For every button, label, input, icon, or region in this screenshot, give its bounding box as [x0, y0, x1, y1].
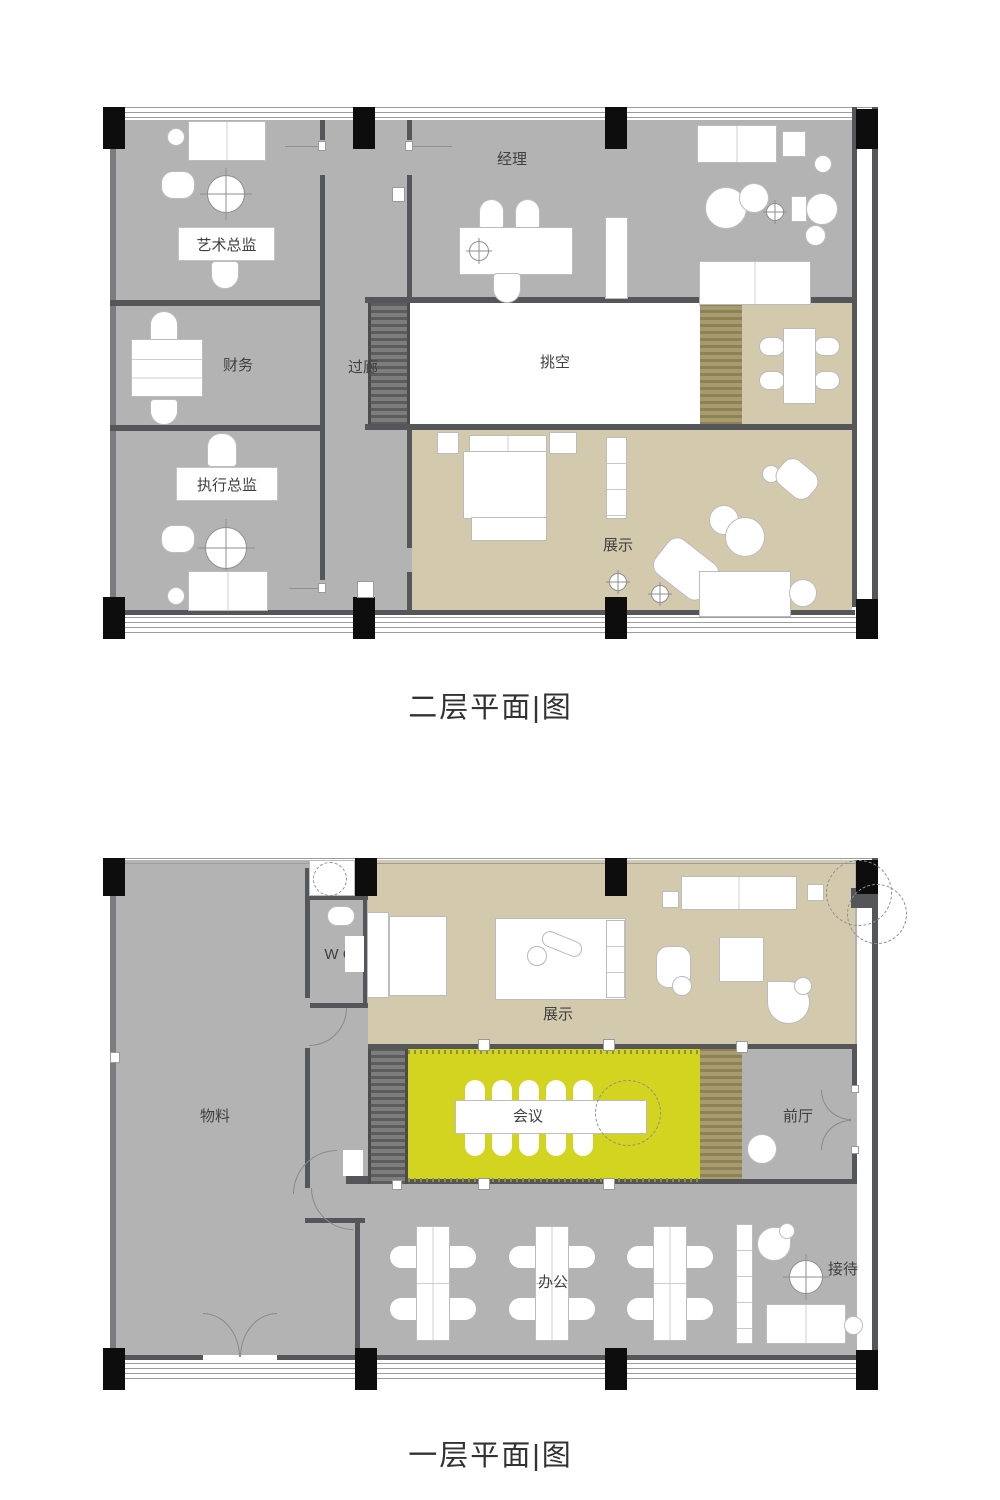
wall-niche: [478, 1039, 490, 1051]
armchair-icon: [161, 525, 195, 553]
door-handle: [405, 141, 413, 151]
glass-hatch: [408, 1178, 700, 1182]
pillow-icon: [367, 912, 389, 998]
stool-icon: [794, 977, 812, 995]
door-handle: [851, 1146, 859, 1154]
desk-icon: [131, 339, 203, 397]
chair-icon: [759, 337, 785, 356]
wall: [783, 1179, 853, 1184]
wall: [365, 424, 855, 430]
room-label-front-hall: 前厅: [766, 1108, 830, 1126]
column: [355, 1348, 377, 1390]
column: [355, 858, 377, 896]
wood-stairs-icon: [700, 1048, 742, 1184]
column: [353, 107, 375, 149]
wall: [110, 300, 320, 306]
room-label-void: 挑空: [410, 354, 700, 372]
stairs-icon: [368, 1048, 408, 1184]
wall: [320, 175, 325, 580]
door-handle: [318, 141, 326, 151]
room-label-meeting: 会议: [498, 1108, 558, 1126]
column: [605, 858, 627, 896]
column: [605, 597, 627, 639]
table-icon: [783, 328, 816, 404]
stool-icon: [672, 976, 692, 996]
pouf-icon: [725, 517, 765, 557]
stool-icon: [844, 1316, 863, 1335]
bed-icon: [389, 916, 447, 996]
column: [103, 858, 125, 896]
ottoman-icon: [791, 196, 807, 222]
column: [856, 109, 878, 149]
desk-icon: [653, 1226, 687, 1341]
sofa-icon: [697, 125, 777, 163]
desk-cluster: [643, 1226, 697, 1341]
floor-plan-sheet: 艺术总监 财务 过廊 执行总监 经理: [0, 0, 1000, 1500]
column: [103, 107, 125, 149]
wall-niche: [478, 1178, 490, 1190]
shelf-icon: [606, 920, 625, 998]
sofa-icon: [188, 571, 268, 611]
chair-icon: [814, 337, 840, 356]
window-band-top: [103, 107, 878, 120]
wall-niche: [603, 1039, 615, 1051]
bed-bench-icon: [471, 517, 547, 541]
wall: [110, 425, 320, 431]
stool-icon: [805, 225, 826, 246]
room-label-manager: 经理: [477, 151, 547, 169]
wall-niche: [343, 1150, 363, 1176]
balcony-strip: [857, 143, 872, 605]
wall: [407, 175, 412, 303]
chair-icon: [207, 433, 237, 467]
wall-niche: [357, 581, 374, 598]
room-label-display-2f: 展示: [583, 537, 653, 555]
table-icon: [719, 937, 764, 982]
side-table-icon: [662, 891, 679, 908]
chair-icon: [211, 261, 239, 289]
floor-plan-first: W C 物料 展示: [103, 858, 878, 1403]
pouf-icon: [739, 183, 769, 213]
sofa-icon: [681, 876, 797, 910]
cabinet-icon: [605, 217, 628, 299]
desk-icon: [416, 1226, 450, 1341]
wall-niche: [736, 1041, 748, 1053]
desk-cluster: [406, 1226, 460, 1341]
glass-hatch: [408, 1050, 700, 1054]
stool-icon: [789, 579, 817, 607]
wall: [355, 1223, 360, 1357]
chair-icon: [515, 199, 540, 229]
sofa-icon: [699, 261, 811, 305]
column: [103, 597, 125, 639]
window-band-top: [103, 858, 878, 868]
chair-icon: [493, 273, 521, 303]
side-table-icon: [766, 203, 784, 221]
window-band-bottom: [103, 617, 878, 633]
wall: [407, 572, 412, 610]
side-table-icon: [807, 884, 824, 901]
room-label-reception: 接待: [811, 1261, 875, 1279]
wall: [310, 896, 368, 900]
room-label-display-1f: 展示: [523, 1006, 593, 1024]
compass-icon: [469, 241, 489, 261]
stool-icon: [167, 128, 185, 146]
wall: [407, 430, 412, 548]
side-table-icon: [782, 131, 806, 157]
stool-icon: [747, 1134, 777, 1164]
figure-sketch-icon: [527, 946, 547, 966]
wall: [346, 1176, 368, 1184]
round-table-icon: [205, 527, 247, 569]
compass-icon: [609, 573, 627, 591]
room-label-art-director: 艺术总监: [196, 234, 256, 255]
desk-exec-director: 执行总监: [176, 467, 278, 501]
armchair-icon: [161, 171, 195, 199]
room-label-materials: 物料: [183, 1108, 247, 1126]
room-label-office: 办公: [521, 1274, 585, 1292]
side-table-icon: [437, 432, 459, 454]
door-tick: [412, 146, 452, 147]
wall: [110, 120, 116, 612]
column: [856, 599, 878, 639]
round-table-icon: [207, 175, 245, 213]
room-label-corridor: 过廊: [331, 359, 395, 377]
desk-art-director: 艺术总监: [178, 227, 275, 261]
wall: [407, 120, 412, 140]
wall: [320, 120, 325, 140]
column: [856, 1350, 878, 1390]
chaise-icon: [699, 571, 791, 617]
wall-niche: [392, 1180, 402, 1190]
column: [103, 1348, 125, 1390]
wc-niche: [345, 936, 364, 972]
sofa-icon: [188, 121, 266, 161]
chair-icon: [814, 371, 840, 390]
stool-icon: [814, 155, 832, 173]
shelf-icon: [736, 1224, 753, 1344]
door-handle: [318, 583, 326, 593]
stool-icon: [167, 587, 185, 605]
window-band-bottom: [103, 1363, 878, 1379]
door-handle: [851, 1085, 859, 1093]
chair-icon: [759, 371, 785, 390]
wall: [368, 1044, 875, 1049]
column: [353, 597, 375, 639]
sofa-icon: [766, 1304, 846, 1344]
chair-icon: [479, 199, 504, 229]
toilet-icon: [327, 906, 355, 926]
stool-icon: [779, 1223, 795, 1239]
tree-icon: [595, 1080, 661, 1146]
wall-niche: [392, 187, 405, 202]
bed-icon: [463, 451, 547, 519]
shelf-icon: [606, 437, 627, 519]
room-label-exec-director: 执行总监: [197, 474, 257, 495]
wall-niche: [603, 1178, 615, 1190]
balcony-strip: [857, 894, 872, 1354]
wall: [872, 107, 878, 612]
column: [605, 1348, 627, 1390]
plant-icon: [313, 862, 347, 896]
wood-stairs-icon: [700, 303, 742, 424]
plan-title-first-floor: 一层平面|图: [103, 1432, 878, 1474]
floor-plan-second: 艺术总监 财务 过廊 执行总监 经理: [103, 107, 878, 647]
room-label-finance: 财务: [203, 357, 273, 375]
compass-icon: [651, 585, 669, 603]
plan-title-second-floor: 二层平面|图: [103, 684, 878, 726]
column: [605, 107, 627, 149]
wall: [110, 868, 116, 1360]
tree-icon: [847, 884, 907, 944]
side-table-icon: [549, 432, 577, 454]
armchair-icon: [806, 193, 838, 225]
wall-niche: [110, 1052, 120, 1063]
